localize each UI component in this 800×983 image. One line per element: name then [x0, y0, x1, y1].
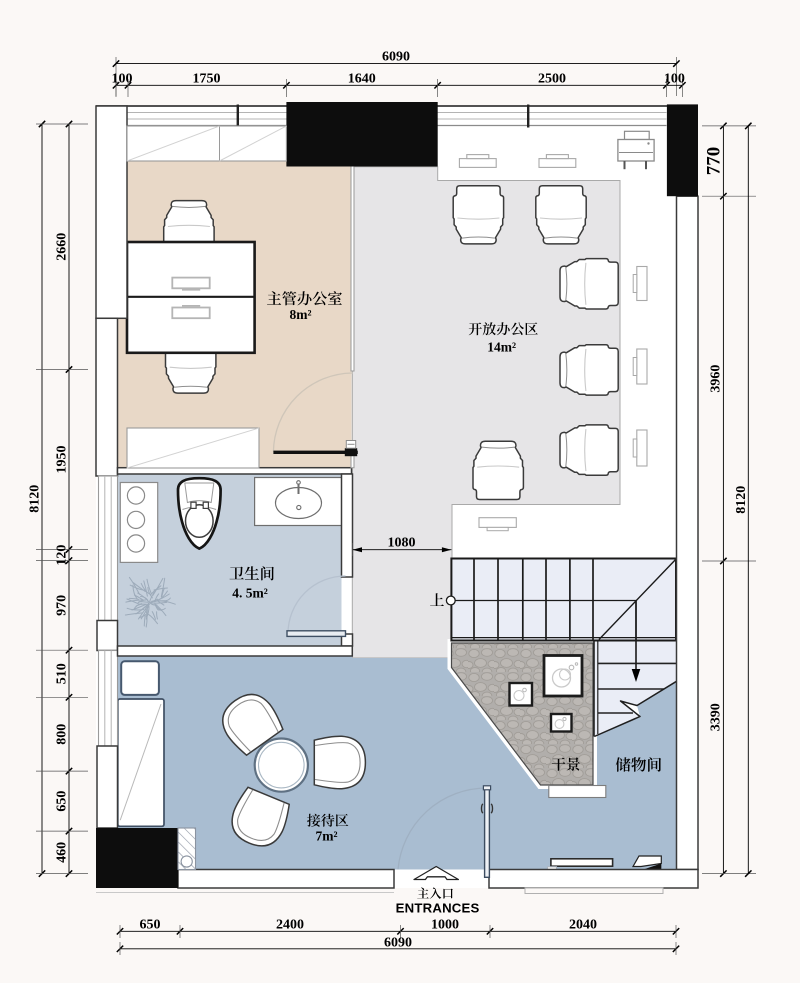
- svg-text:14m²: 14m²: [487, 340, 516, 355]
- svg-text:460: 460: [55, 842, 70, 863]
- svg-text:2500: 2500: [538, 71, 566, 86]
- svg-text:8120: 8120: [734, 486, 749, 514]
- svg-text:770: 770: [704, 147, 725, 176]
- svg-text:8m²: 8m²: [289, 307, 311, 322]
- svg-text:1640: 1640: [348, 71, 376, 86]
- svg-text:800: 800: [55, 724, 70, 745]
- svg-text:1950: 1950: [55, 446, 70, 474]
- svg-text:1080: 1080: [388, 536, 416, 551]
- svg-text:970: 970: [55, 595, 70, 616]
- svg-text:6090: 6090: [382, 50, 410, 65]
- svg-text:3960: 3960: [709, 365, 724, 393]
- svg-text:100: 100: [664, 71, 685, 86]
- svg-text:7m²: 7m²: [315, 829, 337, 844]
- svg-text:2660: 2660: [55, 233, 70, 261]
- svg-text:1000: 1000: [431, 917, 459, 932]
- svg-text:100: 100: [112, 71, 133, 86]
- svg-text:6090: 6090: [384, 935, 412, 950]
- svg-text:4. 5m²: 4. 5m²: [232, 586, 268, 601]
- svg-text:8120: 8120: [28, 485, 43, 513]
- svg-text:2400: 2400: [276, 917, 304, 932]
- svg-text:ENTRANCES: ENTRANCES: [396, 901, 480, 916]
- svg-text:120: 120: [55, 545, 70, 566]
- svg-text:2040: 2040: [569, 917, 597, 932]
- svg-text:650: 650: [55, 791, 70, 812]
- svg-text:510: 510: [55, 663, 70, 684]
- svg-text:1750: 1750: [193, 71, 221, 86]
- svg-text:650: 650: [140, 917, 161, 932]
- svg-text:3390: 3390: [709, 703, 724, 731]
